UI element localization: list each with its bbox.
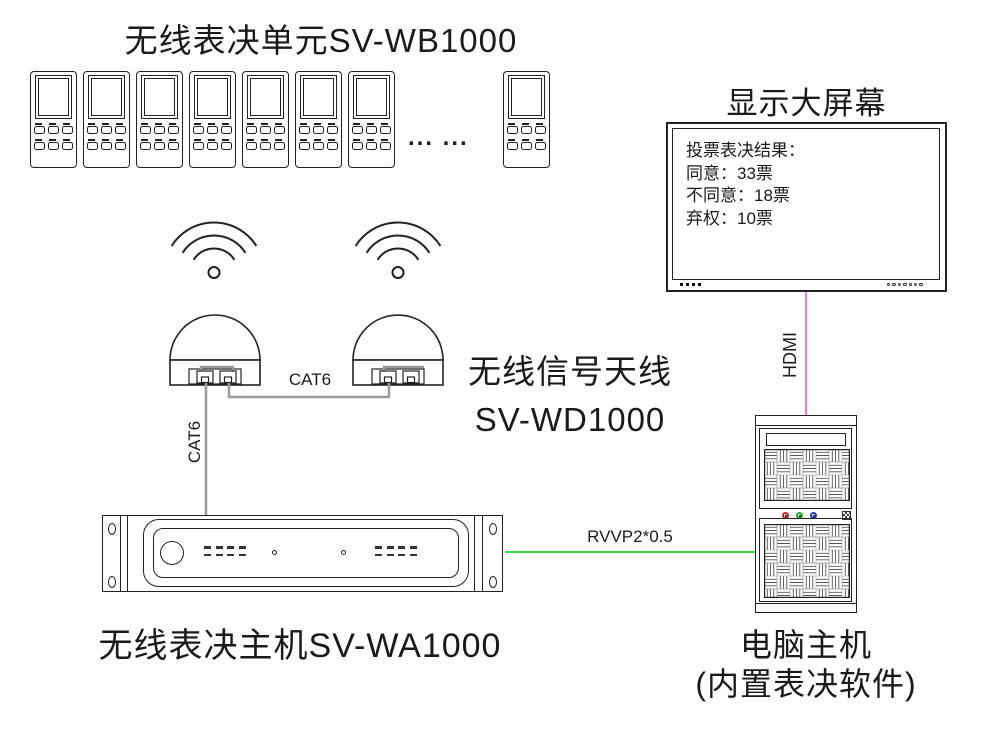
voting-unit-button [299,142,310,150]
voting-unit-button [207,126,218,134]
voting-unit-buttons [140,126,179,150]
voting-unit-button [62,142,73,150]
screw-hole [489,576,497,588]
voting-unit-button [246,142,257,150]
monitor-bezel-buttons [680,283,701,286]
voting-unit-buttons [507,126,546,150]
voting-host-device [102,515,503,592]
monitor-bezel-leds [887,283,923,286]
antenna-dome [353,315,443,385]
voting-host-label: 无线表决主机SV-WA1000 [75,618,525,667]
voting-unit-button [115,142,126,150]
voting-unit-button [521,142,532,150]
voting-unit-button [507,142,518,150]
voting-unit-buttons [193,126,232,150]
voting-unit-screen [194,75,231,119]
cat6-label-vertical: CAT6 [185,412,205,472]
voting-unit-button [260,142,271,150]
voting-unit-button [352,126,363,134]
voting-unit-button [115,126,126,134]
antenna-label-line2: SV-WD1000 [445,396,695,444]
indicator-dot [272,550,277,555]
voting-unit-button [101,126,112,134]
vote-result-line: 同意：33票 [686,163,939,186]
vent-slots [375,546,417,556]
rack-front-panel [143,519,469,587]
ellipsis-dots: ... ... [408,124,508,152]
voting-unit-button [221,142,232,150]
voting-unit-buttons [34,126,73,150]
voting-unit [83,71,130,168]
voting-unit [189,71,236,168]
screw-hole [108,523,116,535]
rack-ear-left [103,516,121,591]
voting-unit [242,71,289,168]
voting-unit [30,71,77,168]
voting-unit-button [193,142,204,150]
voting-unit-button [168,126,179,134]
voting-unit-buttons [246,126,285,150]
antenna-label: 无线信号天线 SV-WD1000 [445,348,695,444]
display-monitor: 投票表决结果： 同意：33票 不同意：18票 弃权：10票 [666,122,947,292]
voting-unit-button [274,142,285,150]
screw-hole [108,576,116,588]
wifi-icon [356,222,441,278]
voting-unit-screen [247,75,284,119]
cat6-label-horizontal: CAT6 [270,370,350,390]
voting-unit-screen [35,75,72,119]
voting-unit-button [366,142,377,150]
monitor-screen: 投票表决结果： 同意：33票 不同意：18票 弃权：10票 [672,128,940,280]
computer-label: 电脑主机 (内置表决软件) [655,626,957,704]
voting-unit-button [87,126,98,134]
voting-unit-button [327,126,338,134]
voting-unit-button [207,142,218,150]
voting-unit-button [168,142,179,150]
voting-unit [348,71,395,168]
voting-unit-button [535,142,546,150]
wifi-icon [172,222,257,278]
voting-unit-button [140,126,151,134]
voting-unit-button [352,142,363,150]
voting-unit-screen [508,75,545,119]
computer-label-line1: 电脑主机 [655,626,957,665]
voting-unit-button [274,126,285,134]
voting-unit-screen [300,75,337,119]
voting-unit-button [507,126,518,134]
voting-unit-buttons [352,126,391,150]
voting-unit-button [299,126,310,134]
voting-unit-screen [353,75,390,119]
hdmi-cable-label: HDMI [780,325,800,385]
vent-grille [764,524,850,598]
voting-unit-button [521,126,532,134]
hdmi-cable-line [805,292,807,415]
vote-result-line: 不同意：18票 [686,185,939,208]
rvvp-cable-label: RVVP2*0.5 [530,527,730,547]
voting-unit-button [380,142,391,150]
voting-unit-screen [88,75,125,119]
voting-unit-button [154,142,165,150]
voting-unit [295,71,342,168]
voting-unit-buttons [87,126,126,150]
rack-ear-right [482,516,502,591]
indicator-dot [341,550,346,555]
voting-unit-buttons [299,126,338,150]
computer-tower [755,415,857,613]
voting-unit-button [87,142,98,150]
voting-unit-button [380,126,391,134]
voting-unit-button [48,142,59,150]
voting-unit-button [101,142,112,150]
voting-unit-button [154,126,165,134]
voting-unit-button [34,142,45,150]
voting-unit-button [246,126,257,134]
voting-unit-button [48,126,59,134]
voting-unit-button [366,126,377,134]
antenna-dome [170,315,260,385]
voting-unit-button [221,126,232,134]
voting-unit-button [313,126,324,134]
voting-unit-button [62,126,73,134]
voting-unit [503,71,550,168]
voting-unit [136,71,183,168]
voting-unit-button [260,126,271,134]
voting-unit-button [193,126,204,134]
vent-grille [764,449,850,501]
drive-bay [766,433,846,446]
diagram-canvas: 无线表决单元SV-WB1000 ... ... 显示大屏幕 投票表决结果： 同意… [0,0,994,736]
voting-unit-button [313,142,324,150]
display-screen-title: 显示大屏幕 [666,78,947,123]
voting-unit-button [535,126,546,134]
computer-label-line2: (内置表决软件) [655,665,957,704]
antenna-label-line1: 无线信号天线 [445,348,695,396]
knob-icon [160,541,184,565]
vote-result-line: 弃权：10票 [686,208,939,231]
vote-result-line: 投票表决结果： [686,140,939,163]
screw-hole [489,523,497,535]
voting-unit-screen [141,75,178,119]
voting-unit-button [34,126,45,134]
rvvp-cable-line [505,551,755,553]
voting-unit-button [327,142,338,150]
voting-unit-button [140,142,151,150]
vent-slots [204,546,246,556]
